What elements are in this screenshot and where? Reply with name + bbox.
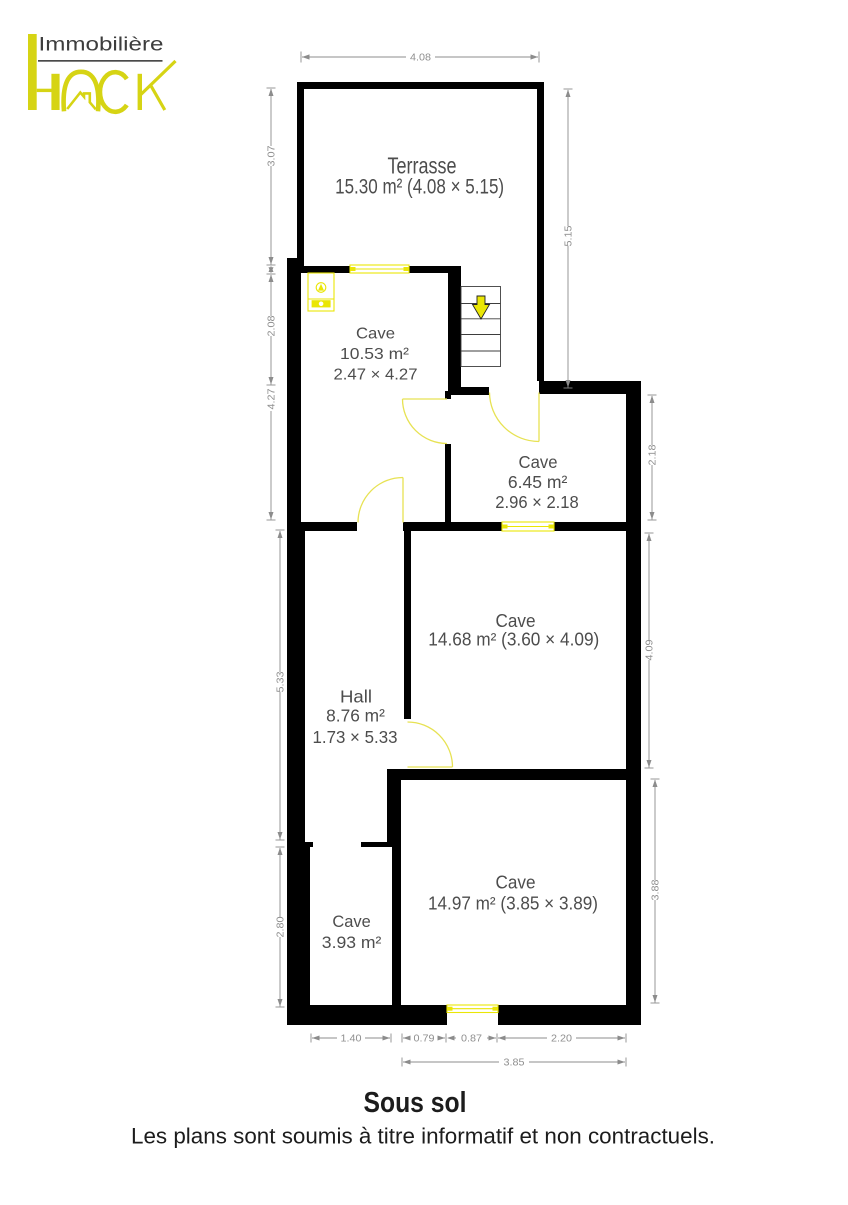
svg-text:5.33: 5.33 — [275, 671, 287, 692]
svg-text:1.40: 1.40 — [341, 1033, 362, 1045]
svg-text:2.80: 2.80 — [275, 916, 287, 937]
svg-text:2.47 × 4.27: 2.47 × 4.27 — [334, 367, 418, 384]
svg-text:2.20: 2.20 — [551, 1033, 572, 1045]
svg-text:Sous sol: Sous sol — [364, 1087, 467, 1119]
svg-text:2.08: 2.08 — [266, 315, 278, 336]
svg-text:Cave: Cave — [496, 872, 536, 892]
svg-text:14.97 m² (3.85 × 3.89): 14.97 m² (3.85 × 3.89) — [428, 894, 598, 914]
svg-text:Cave: Cave — [519, 452, 558, 472]
svg-text:Terrasse: Terrasse — [388, 153, 457, 179]
svg-text:Cave: Cave — [356, 325, 395, 342]
svg-text:1.73 × 5.33: 1.73 × 5.33 — [313, 727, 398, 747]
svg-text:8.76 m²: 8.76 m² — [326, 706, 385, 726]
svg-text:14.68 m² (3.60 × 4.09): 14.68 m² (3.60 × 4.09) — [428, 630, 599, 650]
svg-text:2.96 × 2.18: 2.96 × 2.18 — [495, 492, 579, 512]
svg-text:3.88: 3.88 — [650, 879, 662, 900]
svg-text:3.93 m²: 3.93 m² — [322, 933, 382, 952]
svg-text:3.85: 3.85 — [504, 1057, 525, 1069]
svg-text:2.18: 2.18 — [647, 444, 659, 465]
svg-text:0.79: 0.79 — [414, 1033, 435, 1045]
svg-text:Hall: Hall — [340, 687, 372, 707]
svg-text:3.07: 3.07 — [266, 145, 278, 166]
svg-text:Cave: Cave — [332, 912, 370, 931]
svg-text:Cave: Cave — [496, 611, 536, 631]
svg-text:15.30 m² (4.08 × 5.15): 15.30 m² (4.08 × 5.15) — [335, 176, 504, 199]
svg-text:Les plans sont soumis à titre: Les plans sont soumis à titre informatif… — [131, 1124, 715, 1149]
svg-text:4.27: 4.27 — [266, 388, 278, 409]
svg-text:0.87: 0.87 — [461, 1033, 482, 1045]
svg-text:4.08: 4.08 — [410, 52, 431, 64]
svg-text:6.45 m²: 6.45 m² — [508, 472, 568, 492]
svg-text:5.15: 5.15 — [563, 225, 575, 246]
svg-text:Immobilière: Immobilière — [39, 34, 164, 56]
svg-text:4.09: 4.09 — [644, 639, 656, 660]
svg-text:10.53 m²: 10.53 m² — [340, 346, 410, 363]
